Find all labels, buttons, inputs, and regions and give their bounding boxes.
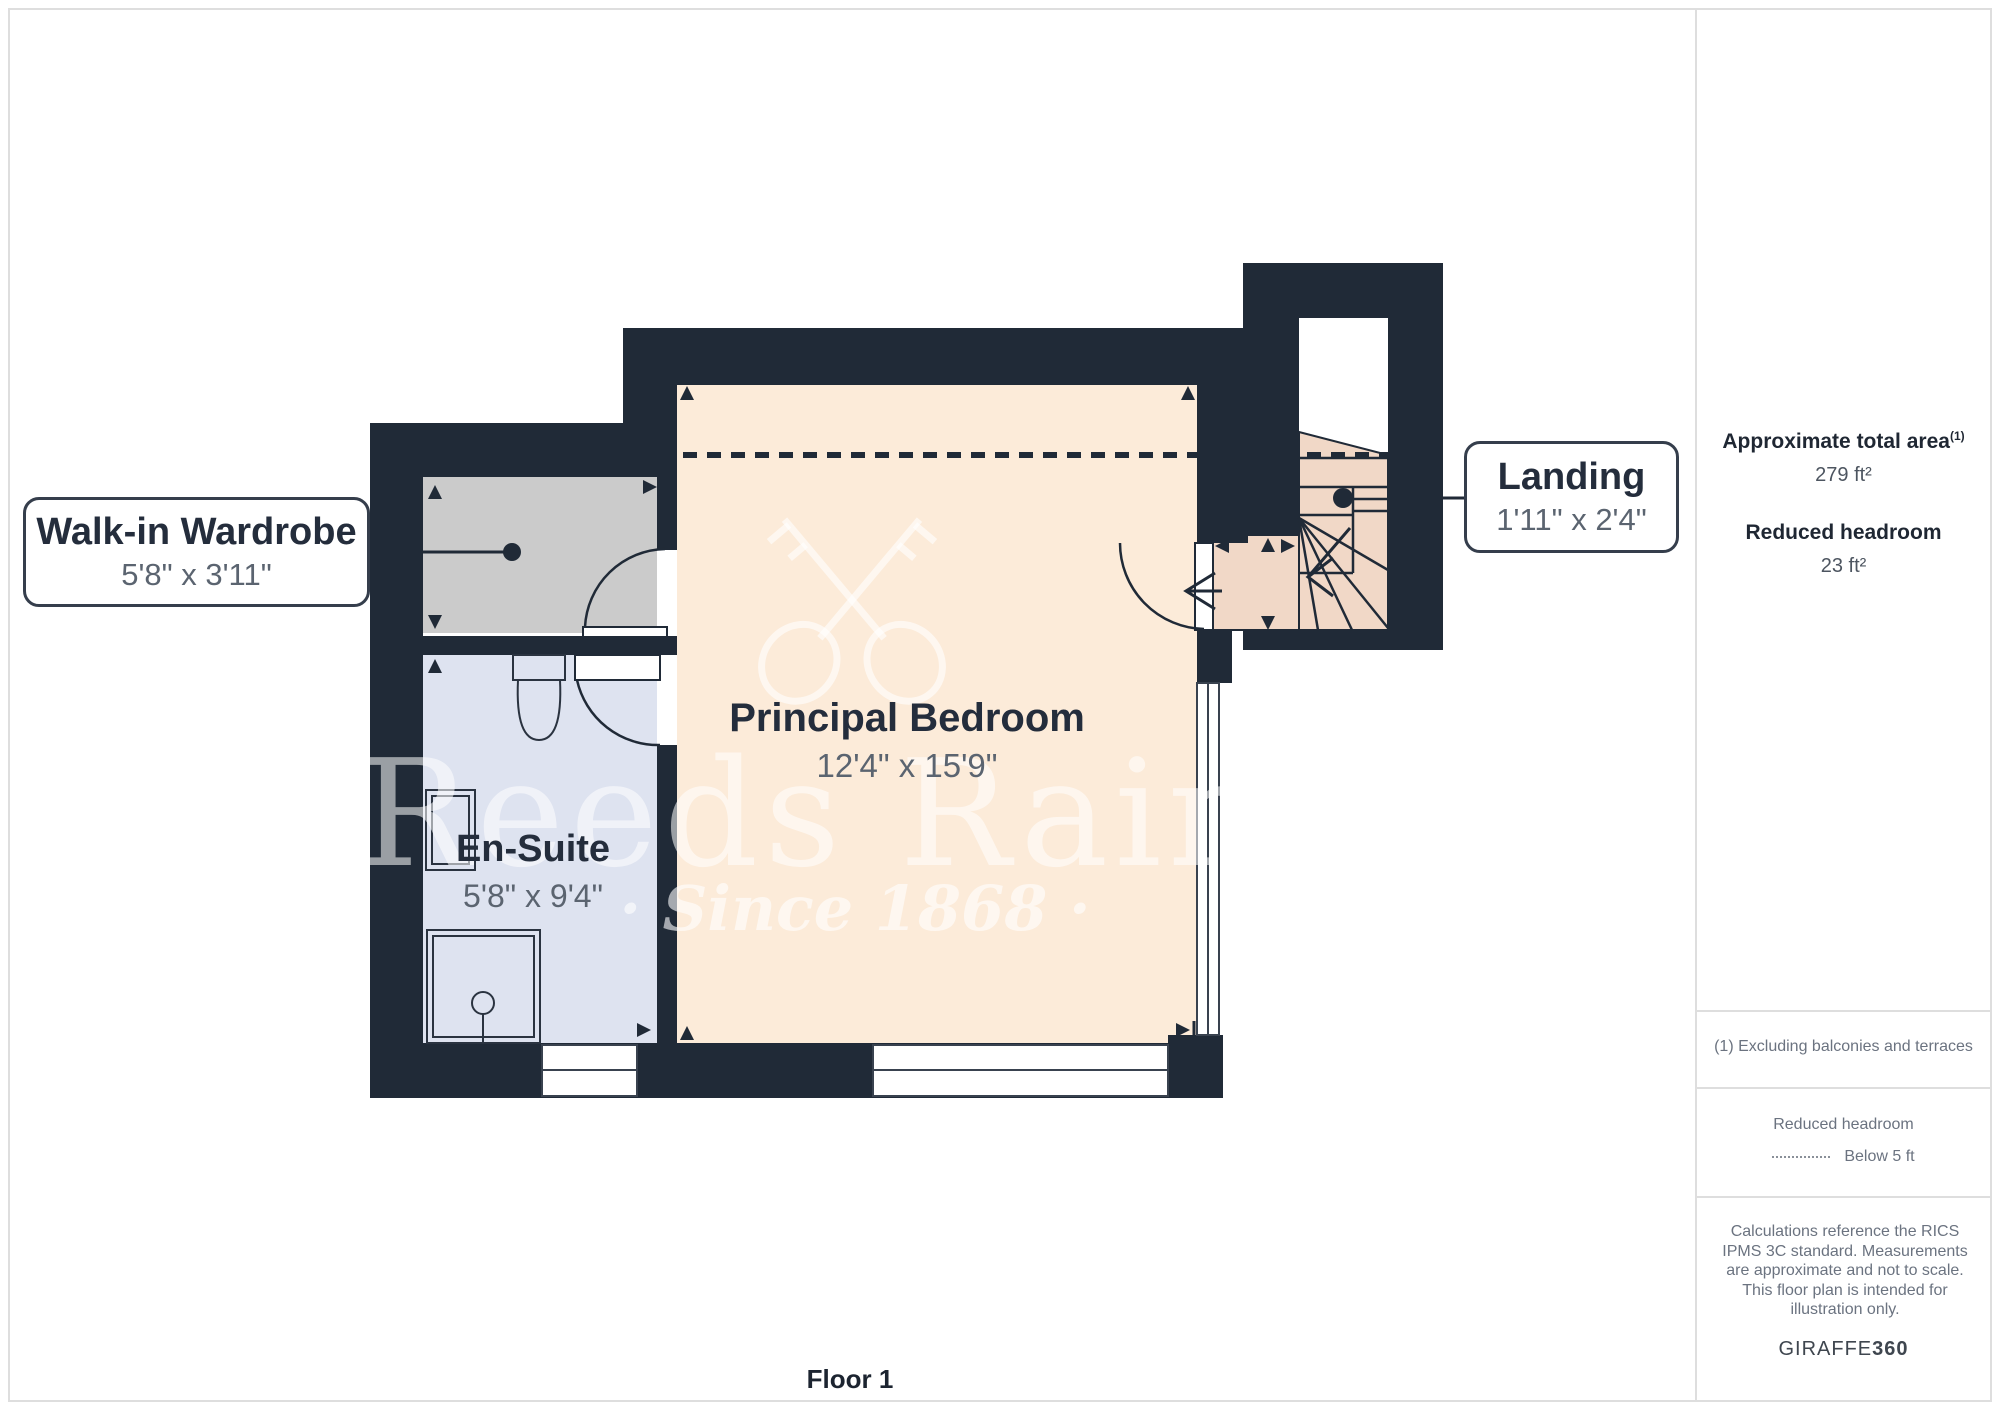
giraffe360-logo: GIRAFFE360: [1697, 1338, 1990, 1361]
landing-dims: 1'11" x 2'4": [1496, 503, 1646, 537]
ensuite-window: [542, 1045, 637, 1096]
dashed-line-sample: [1772, 1156, 1830, 1158]
wardrobe-label-box: Walk-in Wardrobe 5'8" x 3'11": [23, 497, 370, 607]
ensuite-name: En-Suite: [403, 828, 663, 872]
brand-normal: GIRAFFE: [1778, 1338, 1872, 1360]
ensuite-dims: 5'8" x 9'4": [403, 876, 663, 918]
wardrobe-connector-dot: [503, 543, 521, 561]
sidebar-area-section: Approximate total area(1) 279 ft² Reduce…: [1697, 429, 1990, 578]
footnote-marker: (1): [1950, 429, 1965, 443]
legend-item-label: Below 5 ft: [1844, 1148, 1914, 1166]
reduced-headroom-label: Reduced headroom: [1697, 521, 1990, 545]
bedroom-name: Principal Bedroom: [647, 695, 1167, 741]
landing-label-box: Landing 1'11" x 2'4": [1464, 441, 1679, 553]
sidebar-divider-3: [1697, 1196, 1992, 1198]
sidebar-disclaimer: Calculations reference the RICS IPMS 3C …: [1717, 1222, 1973, 1320]
legend-title: Reduced headroom: [1697, 1116, 1990, 1134]
ensuite-label: En-Suite 5'8" x 9'4": [403, 828, 663, 917]
bedroom-label: Principal Bedroom 12'4" x 15'9": [647, 695, 1167, 788]
sidebar-footnote: (1) Excluding balconies and terraces: [1697, 1038, 1990, 1056]
bedroom-bottom-window: [873, 1045, 1168, 1096]
total-area-label: Approximate total area(1): [1697, 429, 1990, 454]
sidebar-divider-vertical: [1695, 8, 1697, 1400]
legend-row: Below 5 ft: [1697, 1148, 1990, 1166]
stairs-newel-dot: [1333, 488, 1353, 508]
wardrobe-floor: [423, 477, 657, 633]
watermark-tagline: · Since 1868 ·: [619, 872, 1090, 945]
wardrobe-dims: 5'8" x 3'11": [121, 558, 271, 592]
sidebar-divider-1: [1697, 1010, 1992, 1012]
landing-name: Landing: [1498, 457, 1646, 499]
total-area-value: 279 ft²: [1697, 464, 1990, 487]
reduced-headroom-value: 23 ft²: [1697, 555, 1990, 578]
brand-bold: 360: [1872, 1338, 1908, 1360]
sidebar-divider-2: [1697, 1087, 1992, 1089]
floorplan-page: Reeds Rains · Since 1868 · Walk-in Wardr…: [0, 0, 2000, 1414]
bedroom-dims: 12'4" x 15'9": [647, 745, 1167, 788]
floor-label: Floor 1: [750, 1364, 950, 1395]
wardrobe-name: Walk-in Wardrobe: [36, 512, 356, 554]
